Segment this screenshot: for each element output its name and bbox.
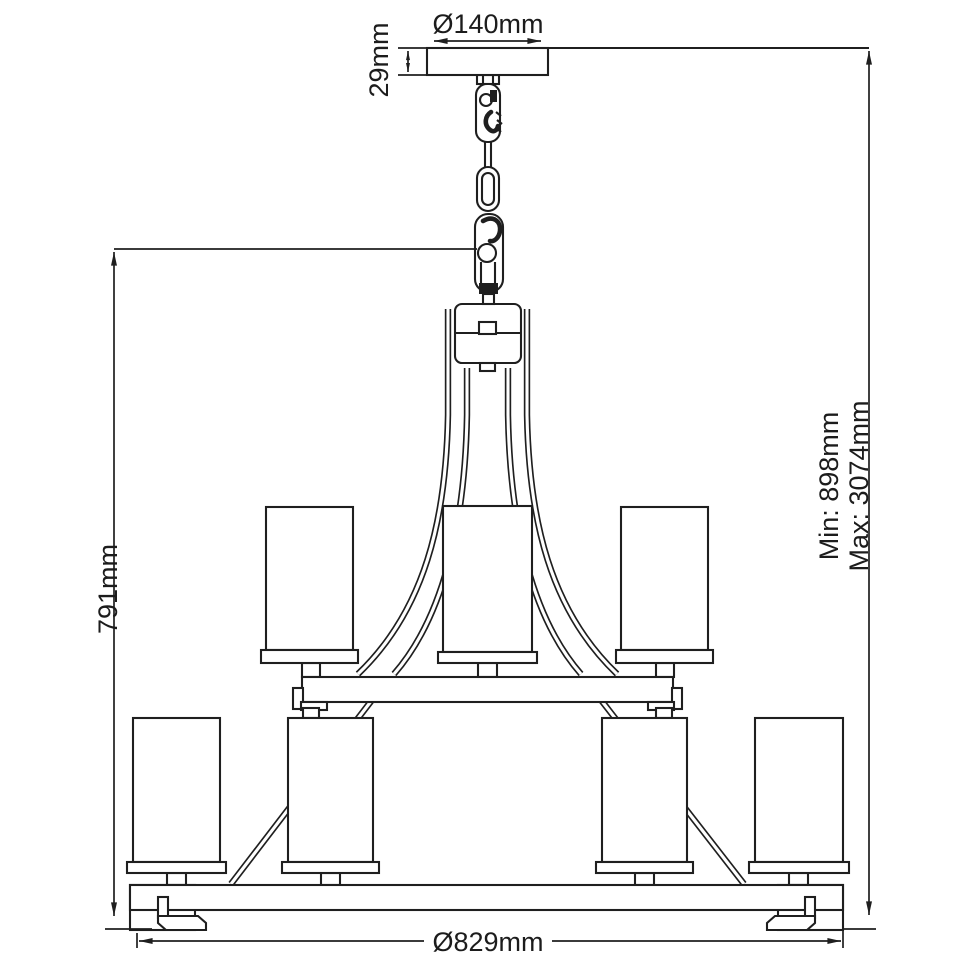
lower-ring <box>130 885 843 930</box>
hub-keyhole-tab <box>479 322 496 334</box>
upper-ring <box>293 677 682 718</box>
candle-lower-far-left <box>127 718 226 885</box>
diagram-svg: Ø140mm 29mm 791mm Min: 898mm Max: 3074mm <box>0 0 970 970</box>
canopy-plate <box>427 48 548 75</box>
suspension-assembly <box>475 75 503 304</box>
upper-ring-band <box>302 677 673 702</box>
min-drop-label: Min: 898mm <box>814 412 844 561</box>
candle-lower-mid-right <box>596 718 693 885</box>
candle-lower-far-right <box>749 718 849 885</box>
bracket-stem-left <box>303 708 319 718</box>
bracket-stem-right <box>656 708 672 718</box>
candle-lower-mid-left <box>282 718 379 885</box>
lower-hook <box>475 214 503 304</box>
hook-cap <box>479 283 498 294</box>
candle-upper-right <box>616 507 713 677</box>
canopy-height-label: 29mm <box>364 22 394 97</box>
max-drop-label: Max: 3074mm <box>844 400 874 571</box>
body-diameter-label: Ø829mm <box>432 927 543 957</box>
ceiling-canopy <box>427 48 869 75</box>
body-height-label: 791mm <box>93 544 123 634</box>
hub-bottom-plug <box>480 363 495 371</box>
candle-upper-center <box>438 506 537 677</box>
body-diameter-dimension: Ø829mm <box>137 912 843 957</box>
canopy-diameter-label: Ø140mm <box>432 9 543 39</box>
canopy-height-dimension: 29mm <box>364 22 427 97</box>
chandelier-dimension-diagram: Ø140mm 29mm 791mm Min: 898mm Max: 3074mm <box>0 0 970 970</box>
canopy-diameter-dimension: Ø140mm <box>432 9 543 41</box>
upper-tier-candles <box>261 506 713 677</box>
chain-link <box>477 167 499 211</box>
lower-tier-candles <box>127 718 849 885</box>
canopy-collar <box>477 75 499 84</box>
lower-ring-band <box>130 885 843 910</box>
candle-upper-left <box>261 507 358 677</box>
upper-hook <box>476 84 502 142</box>
center-column-hub <box>455 304 521 371</box>
